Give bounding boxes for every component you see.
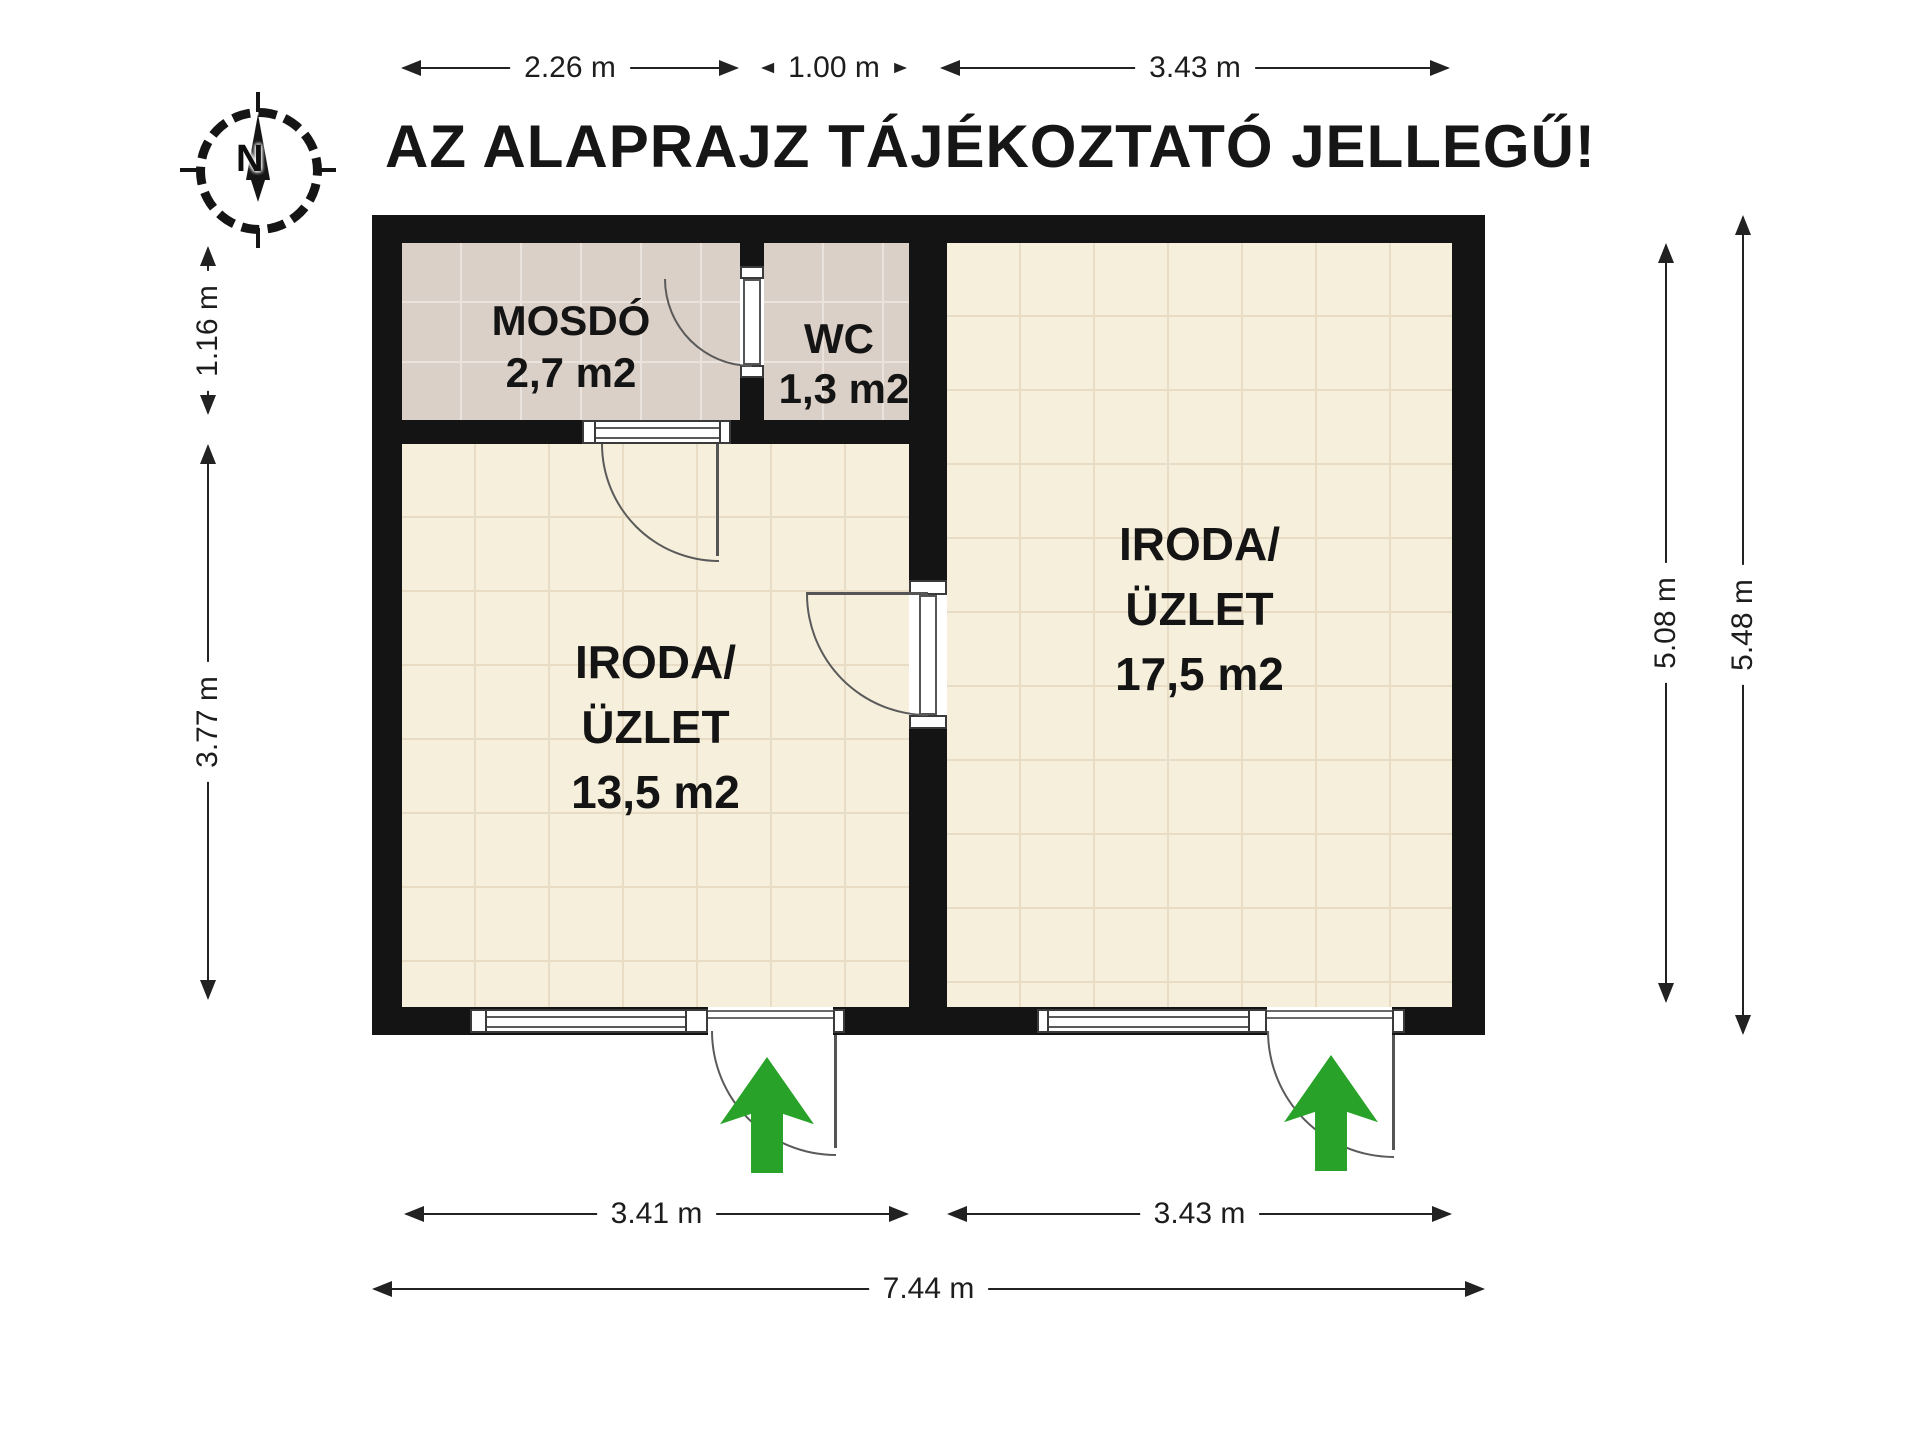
room-iroda1-name-line1: IRODA/: [402, 630, 909, 695]
door-mosdo-iroda1-glazing: [596, 420, 719, 444]
dimension-label: 5.08 m: [1649, 563, 1683, 683]
compass-icon: N: [186, 98, 330, 242]
room-iroda1-name-line2: ÜZLET: [402, 695, 909, 760]
dimension-label: 7.44 m: [869, 1272, 989, 1306]
door-jamb: [909, 715, 947, 729]
compass-tick-west-icon: [180, 168, 200, 172]
room-wc-name: WC: [764, 314, 914, 364]
dimension-label: 3.77 m: [191, 662, 225, 782]
arrow-down-icon: [1658, 983, 1674, 1003]
arrow-up-icon: [1735, 215, 1751, 235]
room-iroda2-name-line1: IRODA/: [947, 512, 1452, 577]
wall-east: [1452, 215, 1485, 1035]
compass-tick-north-icon: [256, 92, 260, 112]
dimension-label: 3.43 m: [1140, 1197, 1260, 1231]
dimension-bottom-total-width: 7.44 m: [372, 1273, 1485, 1305]
dimension-bottom-iroda2: 3.43 m: [947, 1198, 1452, 1230]
dimension-label: 2.26 m: [510, 51, 630, 85]
arrow-right-icon: [719, 60, 739, 76]
window-jamb: [685, 1009, 708, 1033]
wall-north: [372, 215, 1485, 243]
door-jamb: [1392, 1009, 1405, 1033]
arrow-left-icon: [372, 1281, 392, 1297]
room-iroda1-area: 13,5 m2: [402, 760, 909, 825]
arrow-down-icon: [200, 395, 216, 415]
dimension-right-exterior-height: 5.48 m: [1727, 215, 1759, 1035]
dimension-left-iroda1-height: 3.77 m: [192, 444, 224, 1000]
compass-north-label: N: [236, 138, 263, 181]
wall-west: [372, 215, 402, 1035]
dimension-label: 1.16 m: [191, 271, 225, 391]
floorplan-canvas: AZ ALAPRAJZ TÁJÉKOZTATÓ JELLEGŰ! N: [0, 0, 1920, 1440]
arrow-left-icon: [947, 1206, 967, 1222]
arrow-right-icon: [1432, 1206, 1452, 1222]
arrow-right-icon: [889, 1206, 909, 1222]
arrow-up-icon: [200, 444, 216, 464]
room-wc-area: 1,3 m2: [764, 364, 924, 414]
dimension-left-mosdo-height: 1.16 m: [192, 246, 224, 415]
window-iroda1: [487, 1009, 685, 1033]
window-jamb: [1248, 1009, 1267, 1033]
arrow-right-icon: [1430, 60, 1450, 76]
door-jamb: [582, 420, 596, 444]
dimension-top-wc: 1.00 m: [761, 52, 907, 84]
dimension-top-mosdo: 2.26 m: [401, 52, 739, 84]
room-mosdo-area: 2,7 m2: [402, 348, 740, 398]
dimension-label: 3.41 m: [597, 1197, 717, 1231]
compass-tick-east-icon: [316, 168, 336, 172]
compass-tick-south-icon: [256, 228, 260, 248]
arrow-up-icon: [200, 246, 216, 266]
room-iroda2-area: 17,5 m2: [947, 642, 1452, 707]
room-iroda2-name-line2: ÜZLET: [947, 577, 1452, 642]
arrow-down-icon: [200, 980, 216, 1000]
door-jamb: [740, 365, 764, 378]
door-jamb: [833, 1009, 845, 1033]
dimension-label: 5.48 m: [1726, 565, 1760, 685]
door-jamb: [740, 266, 764, 279]
dimension-top-iroda2: 3.43 m: [940, 52, 1450, 84]
door-jamb: [719, 420, 731, 444]
dimension-label: 3.43 m: [1135, 51, 1255, 85]
compass-needle-tail-icon: [251, 180, 265, 202]
arrow-left-icon: [401, 60, 421, 76]
window-iroda2: [1049, 1009, 1248, 1033]
window-jamb: [470, 1009, 487, 1033]
dimension-bottom-iroda1: 3.41 m: [404, 1198, 909, 1230]
arrow-right-icon: [1465, 1281, 1485, 1297]
dimension-right-interior-height: 5.08 m: [1650, 243, 1682, 1003]
dimension-label: 1.00 m: [774, 51, 894, 85]
window-jamb: [1037, 1009, 1049, 1033]
arrow-left-icon: [404, 1206, 424, 1222]
arrow-down-icon: [1735, 1015, 1751, 1035]
room-mosdo-name: MOSDÓ: [402, 296, 740, 346]
arrow-up-icon: [1658, 243, 1674, 263]
arrow-left-icon: [940, 60, 960, 76]
page-title: AZ ALAPRAJZ TÁJÉKOZTATÓ JELLEGŰ!: [385, 112, 1596, 181]
